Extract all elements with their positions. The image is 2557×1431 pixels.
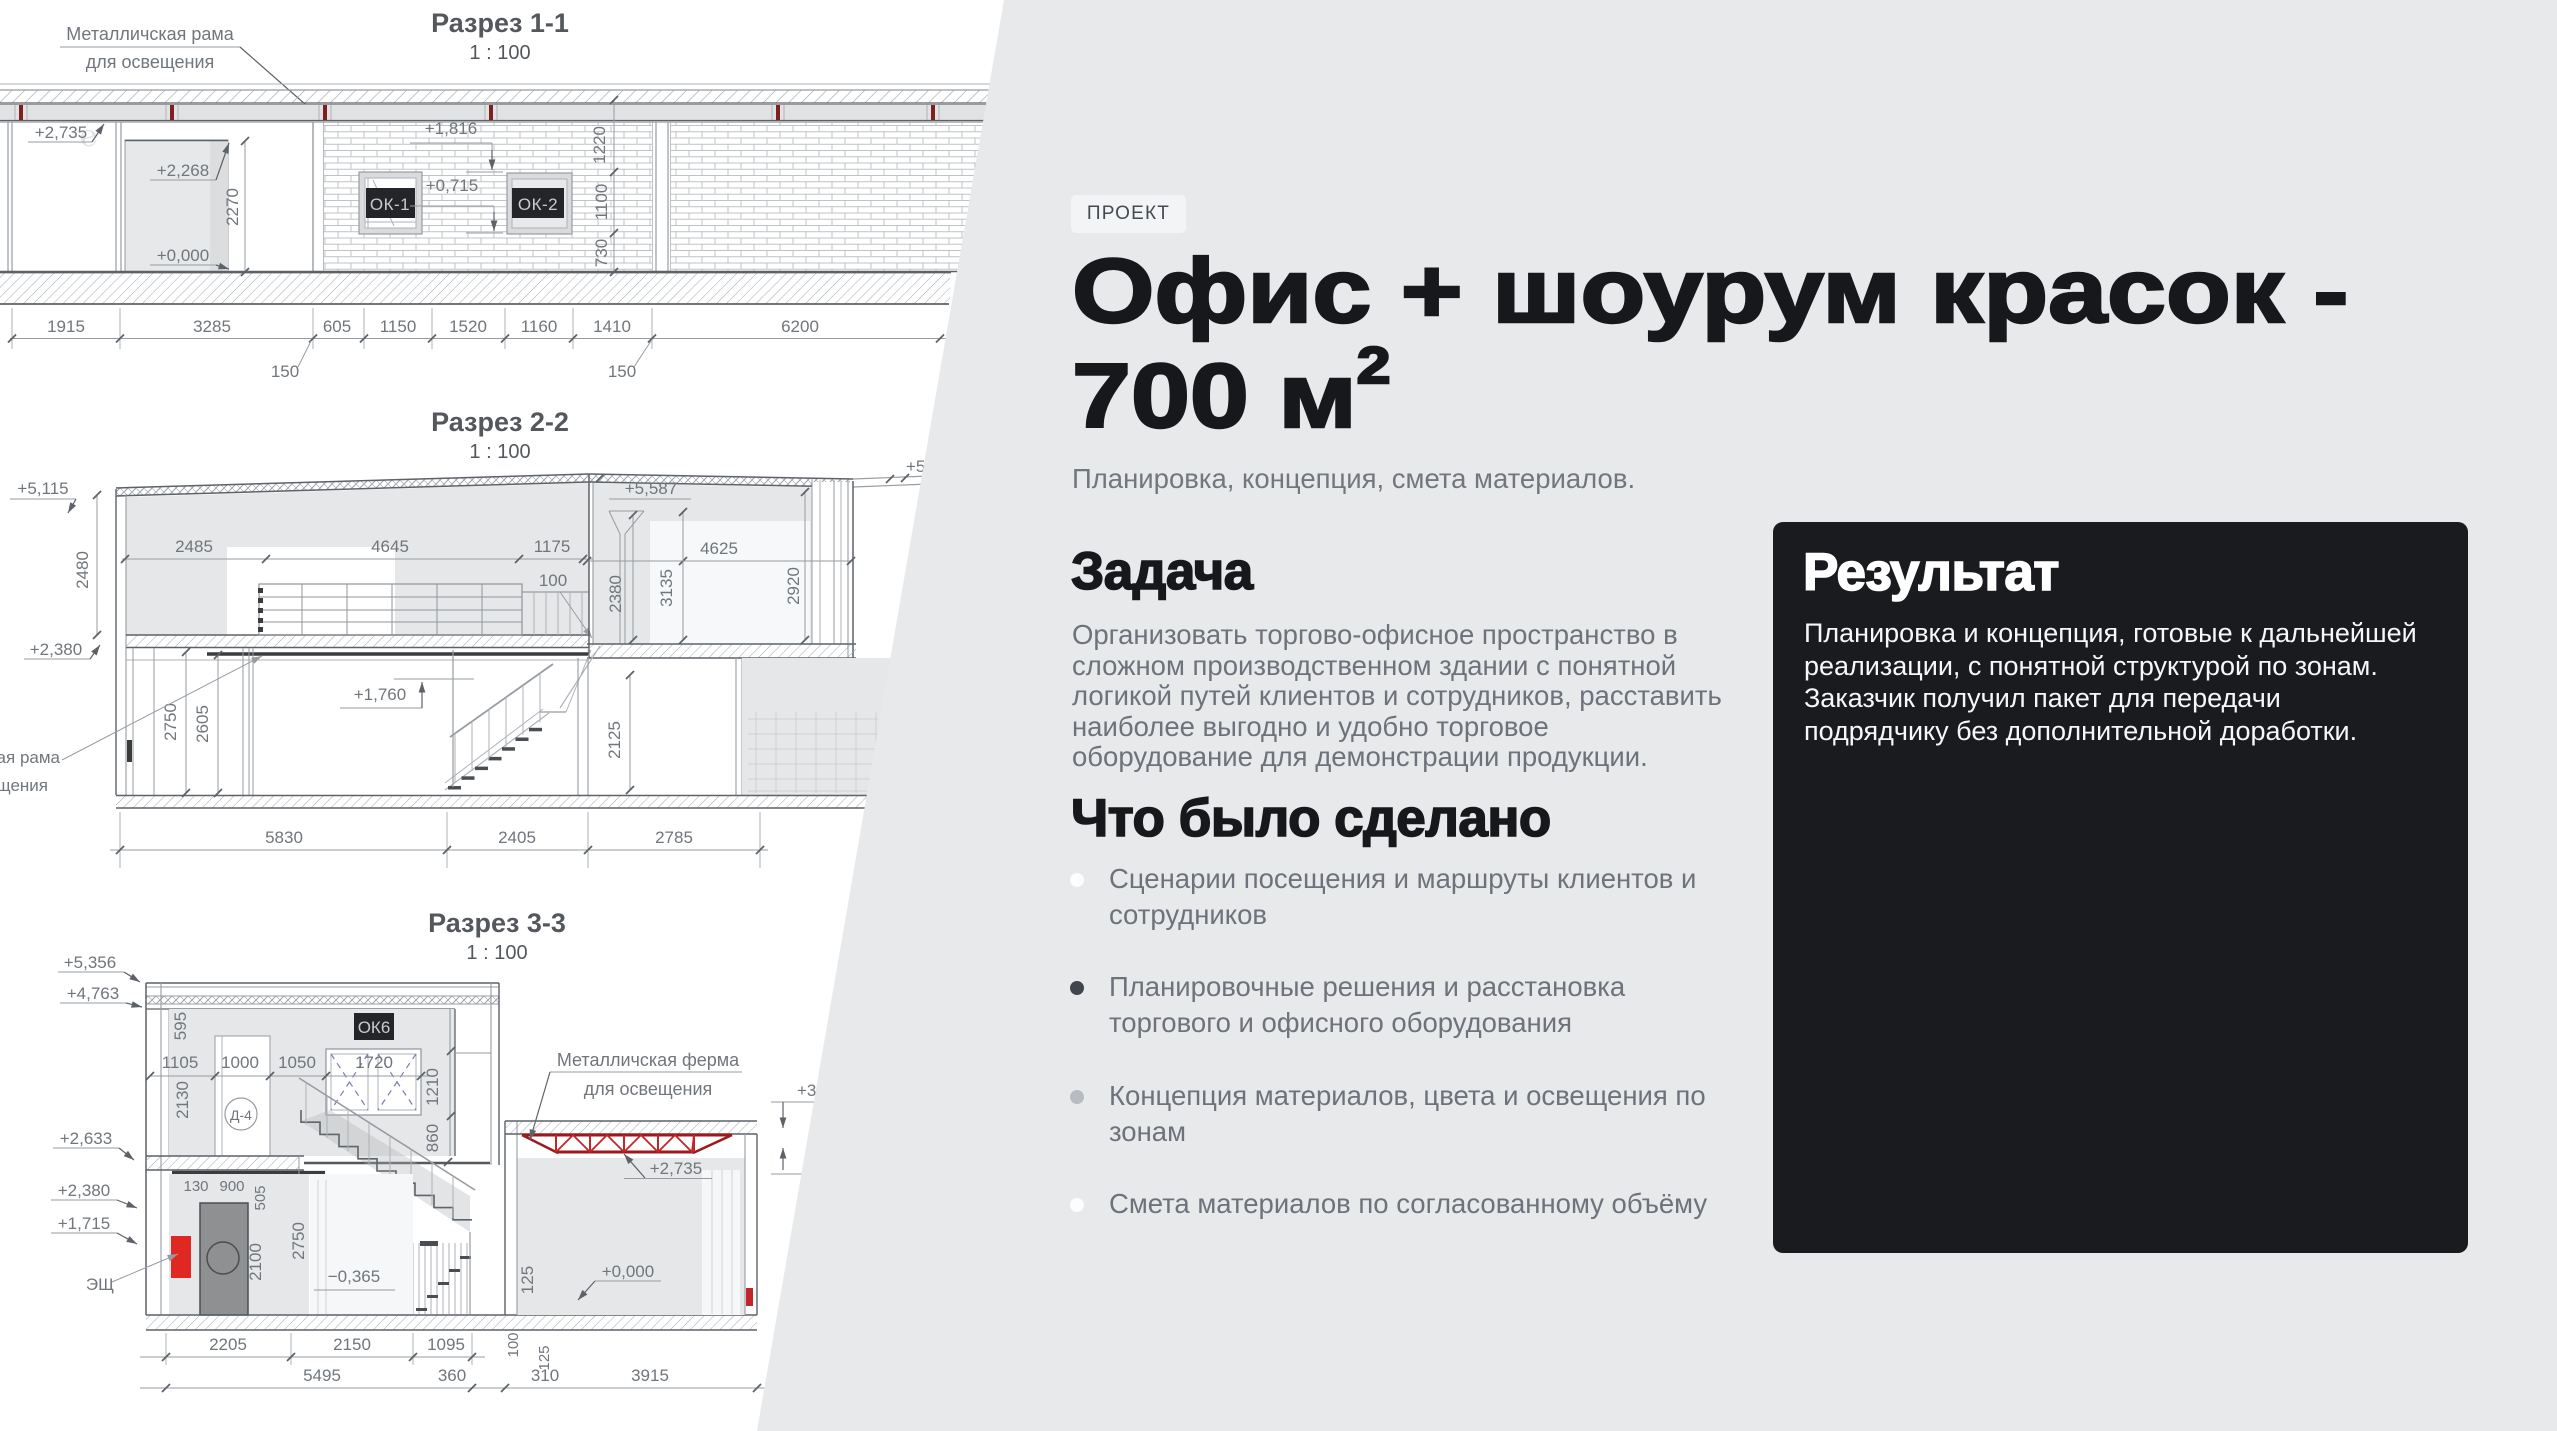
svg-text:730: 730 [592,239,611,267]
svg-text:1 : 100: 1 : 100 [466,942,527,964]
svg-text:2380: 2380 [606,575,625,613]
svg-text:Разрез 1-1: Разрез 1-1 [431,8,569,38]
svg-text:1 : 100: 1 : 100 [469,441,530,463]
svg-text:900: 900 [219,1178,244,1195]
svg-text:+5,356: +5,356 [64,953,116,972]
svg-text:+2,633: +2,633 [60,1129,112,1148]
svg-text:605: 605 [323,317,351,336]
svg-text:1105: 1105 [162,1053,199,1072]
svg-text:+1,715: +1,715 [58,1214,110,1233]
svg-text:3285: 3285 [193,317,231,336]
svg-text:2150: 2150 [333,1335,371,1354]
svg-text:130: 130 [183,1178,208,1195]
svg-text:595: 595 [171,1012,190,1040]
svg-text:Металличская ферма: Металличская ферма [557,1050,740,1070]
svg-text:+2,380: +2,380 [30,640,82,659]
svg-text:2125: 2125 [605,721,624,759]
svg-text:1150: 1150 [380,317,417,336]
svg-text:505: 505 [252,1185,269,1210]
svg-text:3915: 3915 [631,1366,669,1385]
svg-text:2485: 2485 [175,537,213,556]
svg-text:1210: 1210 [423,1068,442,1106]
svg-text:−0,365: −0,365 [328,1267,380,1286]
svg-text:1000: 1000 [221,1053,259,1072]
svg-text:2750: 2750 [161,703,180,741]
svg-text:+3: +3 [797,1081,816,1100]
svg-text:+1,760: +1,760 [354,685,406,704]
svg-text:1915: 1915 [47,317,85,336]
svg-text:+1,816: +1,816 [425,119,477,138]
svg-text:1050: 1050 [278,1053,316,1072]
svg-text:2920: 2920 [784,567,803,605]
svg-text:1220: 1220 [590,126,609,164]
svg-text:2750: 2750 [289,1222,308,1260]
svg-text:2130: 2130 [173,1081,192,1119]
svg-text:1160: 1160 [521,317,558,336]
svg-text:5830: 5830 [265,828,303,847]
svg-text:+2,735: +2,735 [35,123,87,142]
svg-text:Д-4: Д-4 [230,1107,252,1123]
svg-text:+2,735: +2,735 [650,1159,702,1178]
svg-text:вещения: вещения [0,776,48,795]
svg-text:150: 150 [271,362,299,381]
svg-text:+0,715: +0,715 [426,176,478,195]
svg-text:2785: 2785 [655,828,693,847]
svg-text:2270: 2270 [223,188,242,226]
svg-text:150: 150 [608,362,636,381]
svg-text:Металличская рама: Металличская рама [66,24,235,44]
svg-text:ОК-2: ОК-2 [518,195,558,214]
svg-text:для освещения: для освещения [584,1079,713,1099]
svg-text:5495: 5495 [303,1366,341,1385]
svg-text:ЭЩ: ЭЩ [86,1275,114,1294]
svg-text:ОК6: ОК6 [358,1018,391,1037]
svg-text:1720: 1720 [355,1053,393,1072]
svg-text:+5,587: +5,587 [625,479,677,498]
svg-text:ОК-1: ОК-1 [370,195,410,214]
svg-text:+0,000: +0,000 [602,1262,654,1281]
svg-text:100: 100 [505,1332,522,1357]
svg-text:125: 125 [536,1345,553,1370]
svg-text:100: 100 [539,571,567,590]
svg-text:1410: 1410 [593,317,631,336]
svg-text:+0,000: +0,000 [157,246,209,265]
svg-text:4645: 4645 [371,537,409,556]
svg-text:1095: 1095 [427,1335,465,1354]
svg-text:6200: 6200 [781,317,819,336]
svg-text:2405: 2405 [498,828,536,847]
svg-text:1520: 1520 [449,317,487,336]
svg-text:2480: 2480 [73,551,92,589]
svg-text:1 : 100: 1 : 100 [469,42,530,64]
svg-text:+2,268: +2,268 [157,161,209,180]
svg-text:для освещения: для освещения [86,52,215,72]
svg-text:+4,763: +4,763 [67,984,119,1003]
svg-text:1100: 1100 [592,184,611,221]
svg-text:3135: 3135 [657,569,676,607]
svg-text:2205: 2205 [209,1335,247,1354]
svg-text:+5,115: +5,115 [17,479,68,498]
svg-text:2100: 2100 [246,1243,265,1281]
svg-text:+2,380: +2,380 [58,1181,110,1200]
svg-text:Разрез 3-3: Разрез 3-3 [428,908,566,938]
svg-text:чская рама: чская рама [0,748,61,767]
svg-text:360: 360 [438,1366,466,1385]
svg-text:2605: 2605 [193,705,212,743]
svg-text:125: 125 [518,1266,537,1294]
svg-text:4625: 4625 [700,539,738,558]
svg-text:1175: 1175 [534,537,571,556]
svg-text:860: 860 [423,1124,442,1152]
svg-text:Разрез 2-2: Разрез 2-2 [431,407,569,437]
